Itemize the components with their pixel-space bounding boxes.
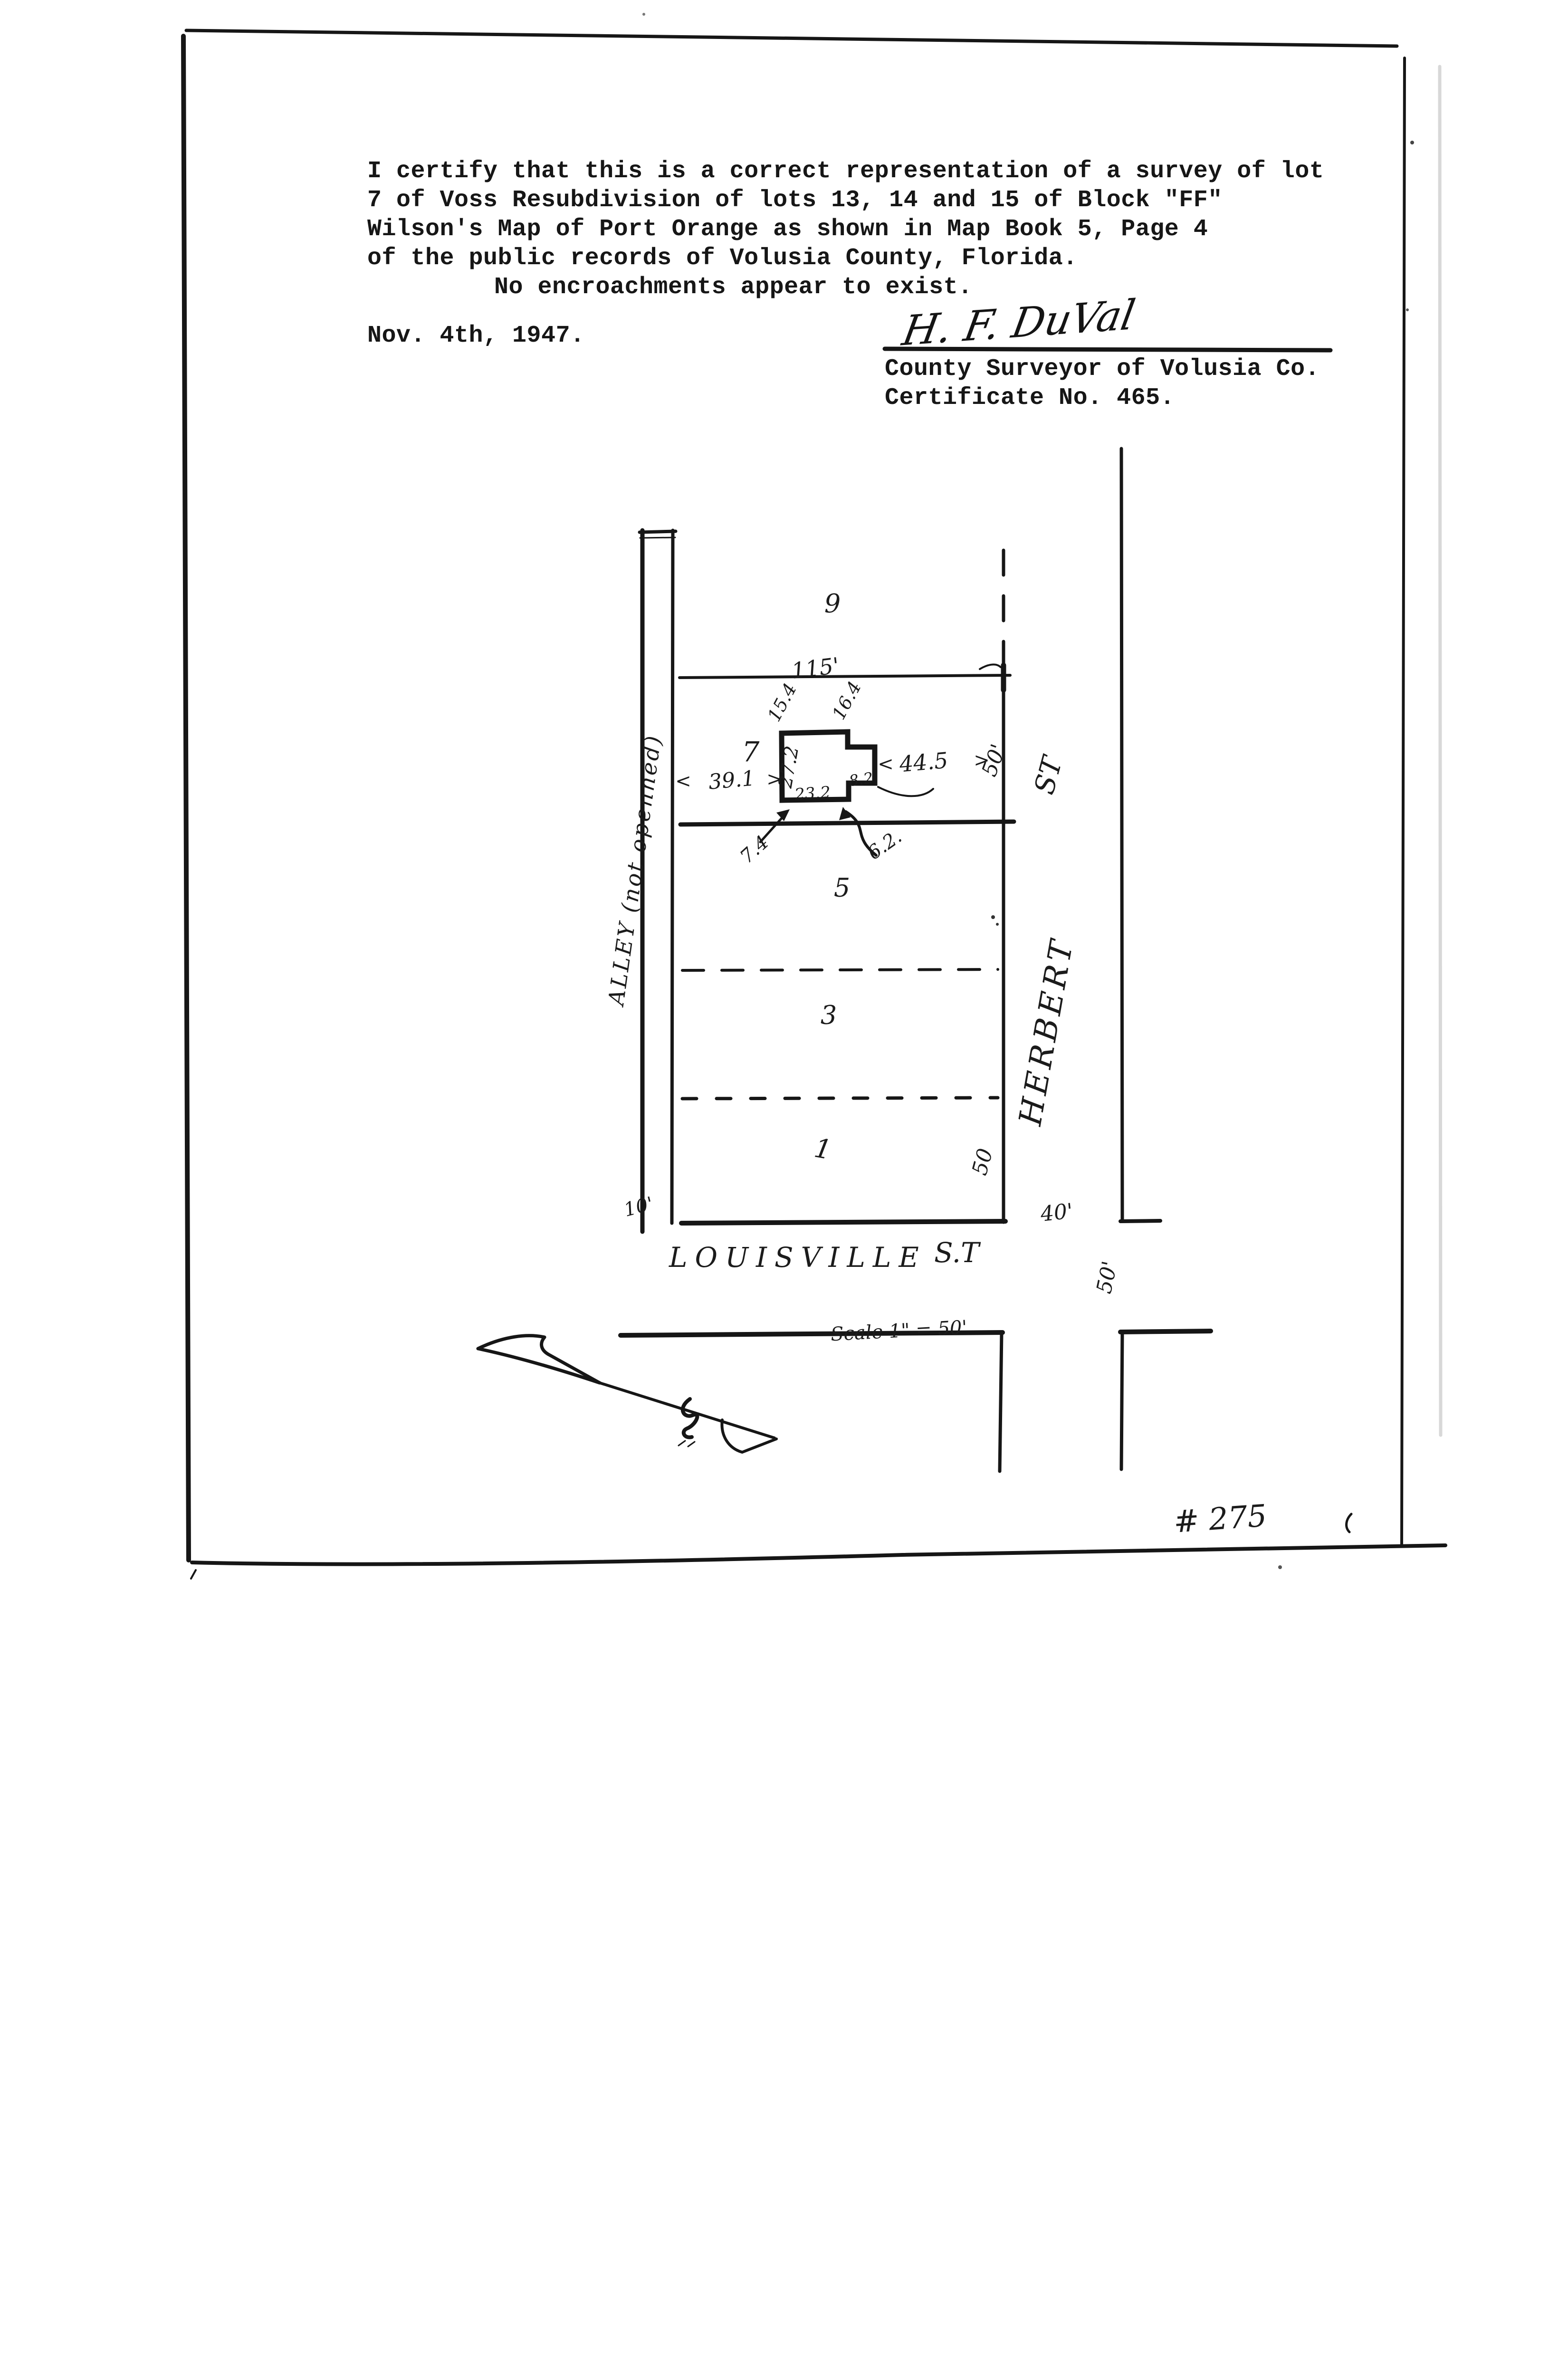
plat-linework (0, 0, 1568, 2376)
dim-115-curl (980, 664, 1001, 669)
dim-house-bottom: 23.2 (794, 783, 831, 804)
line-lot3-lot1 (682, 1098, 998, 1099)
dim-gap-east: 44.5 (899, 747, 949, 777)
north-arrow-n-glyph (683, 1399, 698, 1437)
alley-top-cap (640, 531, 676, 532)
certificate-line-1: I certify that this is a correct represe… (367, 158, 1324, 185)
line-lot5-lot3 (682, 969, 998, 970)
street-louisville: LOUISVILLE (669, 1241, 927, 1274)
line-115 (679, 675, 1010, 678)
north-arrow-hatch (679, 1441, 695, 1447)
leader-7-4-head (776, 809, 790, 821)
lot-label-5: 5 (834, 873, 850, 903)
north-arrow-head-curl (542, 1337, 548, 1354)
scanned-survey-page: I certify that this is a correct represe… (0, 0, 1568, 2376)
alley-east-line (672, 530, 673, 1223)
speck (996, 923, 999, 926)
frame-right (1402, 58, 1405, 1545)
speck (1410, 141, 1414, 144)
alley-top-cap-2 (640, 537, 675, 538)
north-arrow-head-bottom (478, 1349, 600, 1383)
sheet-number: # 275 (1173, 1498, 1268, 1540)
speck (1278, 1565, 1282, 1569)
speck (991, 915, 995, 919)
frame-left (183, 36, 189, 1560)
certificate-date: Nov. 4th, 1947. (367, 322, 585, 349)
certificate-line-5: No encroachments appear to exist. (494, 274, 973, 301)
herbert-west-south (1000, 1332, 1002, 1471)
line-lot7-lot5 (680, 822, 1014, 824)
herbert-east-south (1121, 1332, 1122, 1469)
street-louisville-st: S.T (934, 1236, 979, 1269)
stray-mark-paren (1347, 1514, 1351, 1532)
lot-label-7: 7 (742, 736, 760, 768)
porch-leader-curl (878, 787, 933, 796)
dim-porch: 8.2 (848, 769, 874, 790)
certificate-line-4: of the public records of Volusia County,… (367, 245, 1078, 272)
louisville-north-line (681, 1221, 1005, 1223)
speck (1406, 308, 1409, 311)
louisville-south-stub (1120, 1331, 1211, 1332)
certificate-line-2: 7 of Voss Resubdivision of lots 13, 14 a… (367, 187, 1223, 214)
surveyor-title: County Surveyor of Volusia Co. (885, 355, 1319, 383)
chevron-right-icon: > (766, 768, 783, 790)
herbert-east-line (1121, 449, 1122, 1221)
lot-label-9: 9 (824, 589, 841, 619)
frame-top (186, 30, 1397, 46)
chevron-left-icon: < (675, 770, 691, 792)
dim-gap-west: 39.1 (708, 766, 756, 794)
frame-bottom (192, 1545, 1445, 1564)
chevron-right-icon: > (974, 749, 990, 771)
louisville-north-stub (1120, 1221, 1160, 1221)
speck (642, 13, 645, 16)
dim-herbert-width: 40' (1039, 1199, 1074, 1226)
north-arrow-head-top (478, 1336, 545, 1349)
certificate-line-3: Wilson's Map of Port Orange as shown in … (367, 216, 1208, 243)
lot-label-3: 3 (821, 1000, 837, 1030)
chevron-left-icon: < (878, 753, 894, 775)
scan-edge-shadow (1440, 67, 1441, 1435)
certificate-number: Certificate No. 465. (885, 384, 1175, 412)
stray-mark-tick (191, 1570, 196, 1579)
